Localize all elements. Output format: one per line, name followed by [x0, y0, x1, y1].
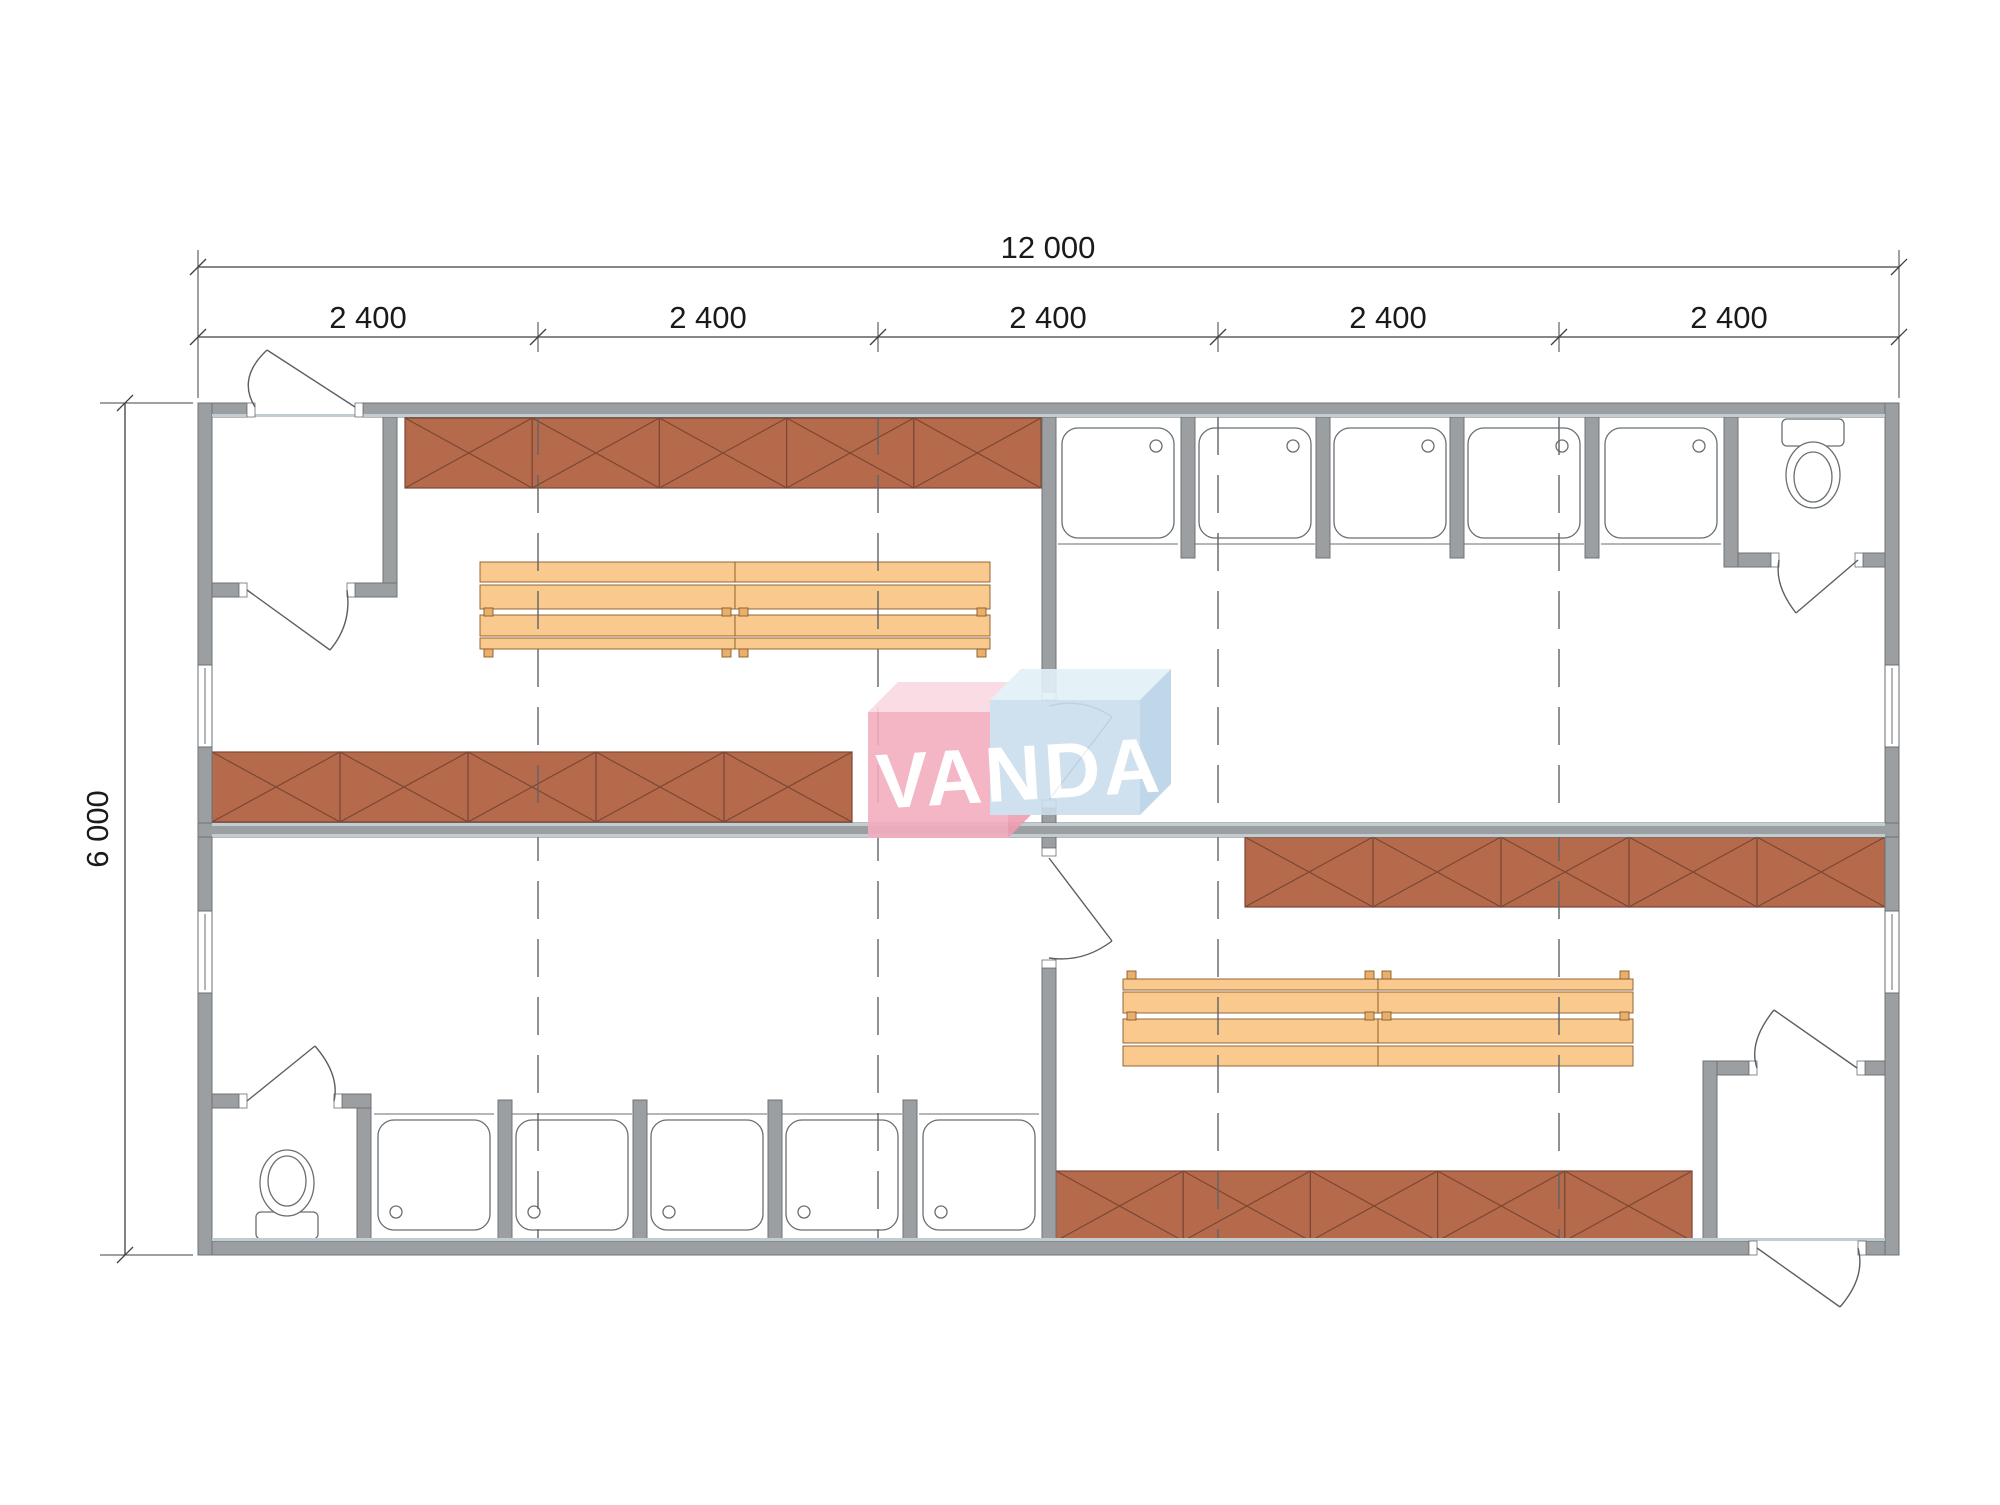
bench: [1123, 971, 1378, 1066]
toilet-icon: [1782, 411, 1844, 508]
locker-unit: [787, 418, 914, 488]
toilet-icon: [256, 1150, 318, 1247]
locker-unit: [659, 418, 786, 488]
partition-wall: [1042, 837, 1056, 848]
shower-partition: [1316, 417, 1330, 558]
vestibule-wall: [1717, 1061, 1749, 1075]
locker-unit: [532, 418, 659, 488]
shower-partition: [498, 1100, 512, 1241]
locker-run-middle-right: [1245, 837, 1885, 907]
window: [1885, 911, 1899, 993]
wc-room-wall: [1724, 417, 1738, 567]
vestibule-wall: [1703, 1061, 1717, 1241]
shower-tray: [1464, 428, 1584, 544]
wall-inner-face: [212, 1238, 1885, 1241]
door-jamb: [1855, 553, 1863, 567]
shower-partition: [1181, 417, 1195, 558]
locker-run-top-left: [405, 418, 1041, 488]
locker-unit: [596, 752, 724, 822]
shower-tray: [782, 1114, 902, 1230]
bench: [1378, 971, 1633, 1066]
door-jamb: [239, 1094, 247, 1108]
exterior-door-bottom-right: [1757, 1248, 1860, 1307]
shower-partition: [903, 1100, 917, 1241]
central-door-bottom: [1049, 858, 1112, 959]
locker-unit: [724, 752, 852, 822]
window: [198, 911, 212, 993]
wc-room-wall: [1863, 553, 1885, 567]
vestibule-wall: [383, 417, 397, 597]
window: [1885, 665, 1899, 747]
module-width-label-2: 2 400: [669, 300, 747, 335]
shower-tray: [647, 1114, 767, 1230]
locker-run-bottom-right: [1056, 1171, 1692, 1241]
locker-unit: [1438, 1171, 1565, 1241]
logo-text: VANDA: [874, 720, 1165, 825]
module-width-label-1: 2 400: [329, 300, 407, 335]
locker-unit: [914, 418, 1041, 488]
shower-partition: [768, 1100, 782, 1241]
locker-unit: [212, 752, 340, 822]
vestibule-wall: [355, 583, 397, 597]
vestibule-wall: [212, 583, 239, 597]
shower-tray: [919, 1114, 1039, 1230]
shower-tray: [1601, 428, 1721, 544]
bench: [735, 562, 990, 657]
partition-wall: [1042, 968, 1056, 1241]
wall-inner-face: [212, 414, 1885, 417]
locker-unit: [468, 752, 596, 822]
wc-room-wall: [357, 1094, 371, 1241]
shower-tray: [1058, 428, 1178, 544]
locker-unit: [1757, 837, 1885, 907]
door-jamb: [239, 583, 247, 597]
locker-run-middle-left: [212, 752, 852, 822]
vestibule-door-top-left: [247, 590, 348, 650]
exterior-door-top-left: [248, 350, 355, 407]
shower-tray: [1330, 428, 1450, 544]
shower-partition: [633, 1100, 647, 1241]
overall-height-label: 6 000: [80, 790, 115, 868]
vestibule-door-bottom-right: [1755, 1010, 1857, 1068]
module-width-label-4: 2 400: [1349, 300, 1427, 335]
door-jamb: [355, 403, 363, 417]
shower-partition: [1585, 417, 1599, 558]
wall-inner-face: [212, 834, 1885, 837]
module-width-label-5: 2 400: [1690, 300, 1768, 335]
locker-unit: [1245, 837, 1373, 907]
locker-unit: [1310, 1171, 1437, 1241]
bench: [480, 562, 735, 657]
shower-tray: [1195, 428, 1315, 544]
floor-plan-drawing: 12 000 2 400 2 400 2 400 2 400 2 400 6 0…: [0, 0, 2000, 1505]
vestibule-wall: [1865, 1061, 1885, 1075]
overall-width-label: 12 000: [1001, 230, 1096, 265]
vanda-watermark: VANDA: [868, 669, 1171, 838]
wc-room-wall: [1738, 553, 1771, 567]
locker-unit: [405, 418, 532, 488]
wc-room-wall: [212, 1094, 239, 1108]
wc-door-bottom-left: [247, 1046, 335, 1101]
locker-unit: [1565, 1171, 1692, 1241]
shower-tray: [374, 1114, 494, 1230]
wc-room-wall: [342, 1094, 371, 1108]
locker-unit: [1629, 837, 1757, 907]
shower-tray: [512, 1114, 632, 1230]
locker-unit: [1373, 837, 1501, 907]
module-width-label-3: 2 400: [1009, 300, 1087, 335]
door-jamb: [1749, 1241, 1757, 1255]
locker-unit: [1056, 1171, 1183, 1241]
door-jamb: [1042, 848, 1056, 856]
door-jamb: [1042, 960, 1056, 968]
partition-wall: [1042, 417, 1056, 692]
window: [198, 665, 212, 747]
wall-inner-face: [212, 823, 1885, 826]
wc-door-top-right: [1778, 560, 1858, 613]
door-jamb: [1857, 1061, 1865, 1075]
bottom-wall: [198, 1241, 1749, 1255]
floor-plan-canvas: 12 000 2 400 2 400 2 400 2 400 2 400 6 0…: [0, 0, 2000, 1505]
shower-partition: [1450, 417, 1464, 558]
locker-unit: [1183, 1171, 1310, 1241]
locker-unit: [1501, 837, 1629, 907]
locker-unit: [340, 752, 468, 822]
